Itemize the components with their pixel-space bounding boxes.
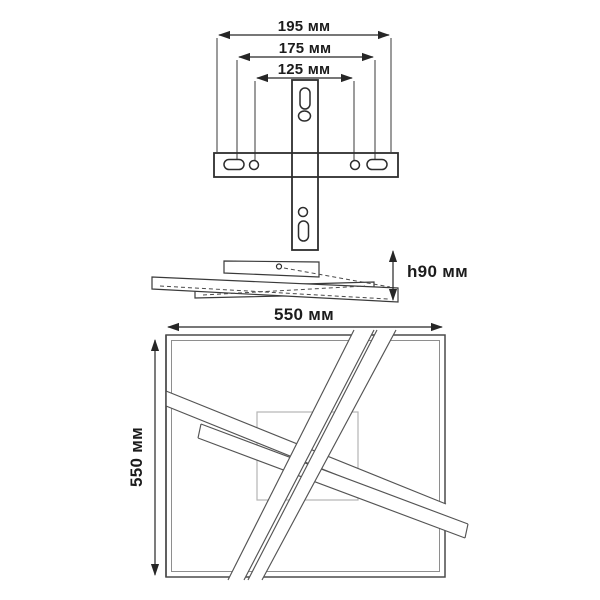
technical-drawing-page: 195 мм 175 мм 125 мм bbox=[0, 0, 600, 600]
bar-slot-right bbox=[367, 160, 387, 170]
side-slat-top bbox=[224, 261, 319, 277]
dim-label-width-550: 550 мм bbox=[274, 305, 334, 324]
strap-hole-lower bbox=[299, 208, 308, 217]
strap-slot-top bbox=[300, 88, 310, 109]
lamp-dimension-diagram: 195 мм 175 мм 125 мм bbox=[0, 0, 600, 600]
bar-hole-left bbox=[250, 161, 259, 170]
strap-hole-upper bbox=[299, 111, 311, 121]
fixture-side-profile-view: h90 мм bbox=[152, 251, 468, 302]
bracket-horizontal-bar bbox=[214, 153, 398, 177]
bracket-vertical-strap bbox=[292, 80, 318, 250]
dim-label-195: 195 мм bbox=[278, 18, 331, 35]
dim-label-h90: h90 мм bbox=[407, 262, 468, 281]
mounting-bracket-front-view: 195 мм 175 мм 125 мм bbox=[214, 18, 398, 250]
dim-label-depth-550: 550 мм bbox=[127, 427, 146, 487]
side-slat-long bbox=[152, 277, 398, 302]
bar-slot-left bbox=[224, 160, 244, 170]
strap-slot-bottom bbox=[299, 221, 309, 241]
dim-label-175: 175 мм bbox=[279, 40, 332, 57]
fixture-top-view: 550 мм 550 мм bbox=[127, 305, 468, 580]
dim-label-125: 125 мм bbox=[278, 61, 331, 78]
bar-hole-right bbox=[351, 161, 360, 170]
